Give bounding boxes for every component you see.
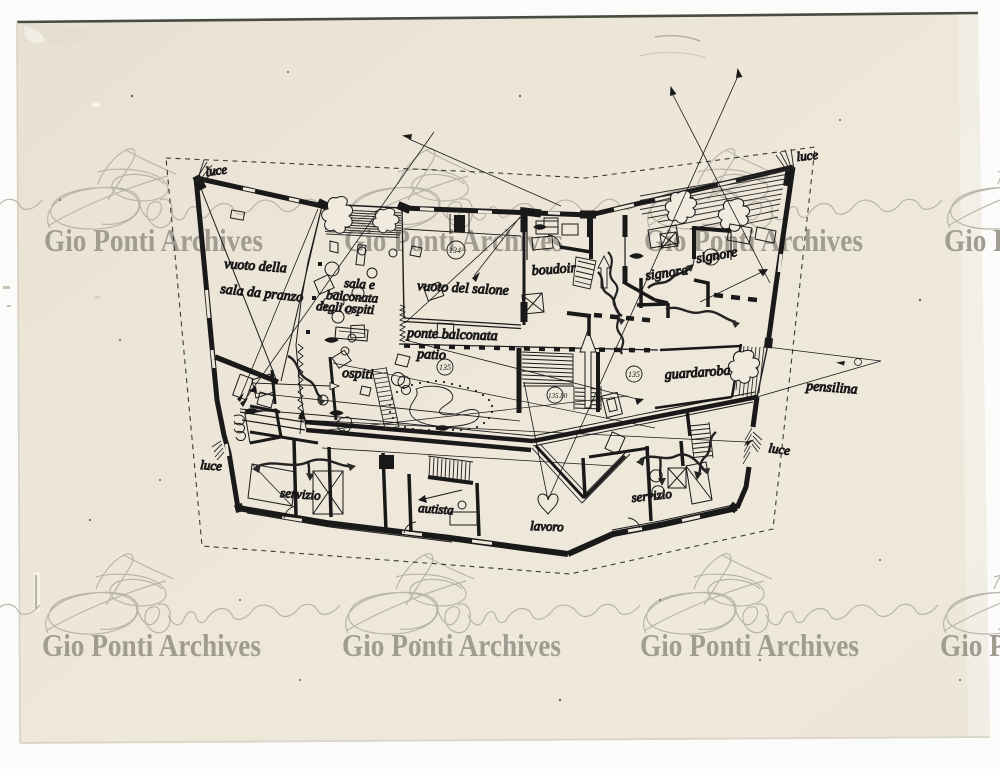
svg-text:135: 135 bbox=[705, 253, 717, 262]
svg-text:autista: autista bbox=[418, 500, 455, 517]
svg-text:servizio: servizio bbox=[280, 485, 322, 503]
svg-text:luce: luce bbox=[796, 147, 819, 164]
svg-text:ponte balconata: ponte balconata bbox=[406, 326, 498, 344]
svg-text:135: 135 bbox=[628, 370, 640, 379]
svg-text:luce: luce bbox=[205, 161, 229, 179]
svg-text:patio: patio bbox=[416, 347, 447, 364]
svg-text:luce: luce bbox=[768, 440, 792, 458]
svg-text:134: 134 bbox=[449, 246, 461, 255]
svg-text:135.80: 135.80 bbox=[548, 392, 568, 400]
svg-text:lavoro: lavoro bbox=[530, 518, 564, 534]
svg-text:ospiti: ospiti bbox=[342, 366, 374, 383]
svg-text:boudoir: boudoir bbox=[531, 261, 577, 279]
svg-text:135: 135 bbox=[439, 363, 451, 372]
svg-text:luce: luce bbox=[200, 457, 223, 473]
